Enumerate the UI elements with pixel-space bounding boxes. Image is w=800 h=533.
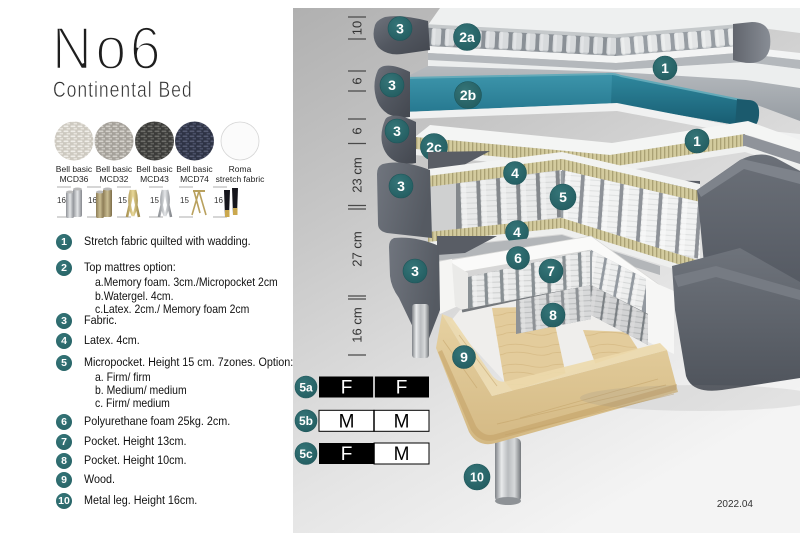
svg-text:16 cm: 16 cm <box>350 307 365 342</box>
svg-text:Bell basic: Bell basic <box>176 164 213 174</box>
svg-text:27 cm: 27 cm <box>350 231 365 266</box>
svg-text:4: 4 <box>513 224 521 240</box>
svg-text:9: 9 <box>460 349 468 365</box>
svg-text:10: 10 <box>350 21 365 35</box>
svg-text:3: 3 <box>397 178 405 194</box>
svg-text:MCD36: MCD36 <box>60 174 89 184</box>
svg-text:7: 7 <box>547 263 555 279</box>
svg-text:Roma: Roma <box>229 164 252 174</box>
svg-text:M: M <box>394 411 410 432</box>
svg-text:5c: 5c <box>299 447 313 461</box>
svg-text:F: F <box>341 378 353 399</box>
svg-text:6: 6 <box>350 127 365 134</box>
svg-text:F: F <box>341 444 353 465</box>
svg-text:5: 5 <box>559 189 567 205</box>
svg-text:1: 1 <box>693 133 701 149</box>
svg-text:8: 8 <box>549 307 557 323</box>
svg-text:3: 3 <box>388 77 396 93</box>
svg-text:10: 10 <box>470 471 484 485</box>
svg-text:6: 6 <box>350 77 365 84</box>
svg-text:2022.04: 2022.04 <box>717 499 754 510</box>
svg-text:4: 4 <box>511 165 519 181</box>
svg-text:MCD32: MCD32 <box>100 174 129 184</box>
svg-text:M: M <box>394 444 410 465</box>
svg-text:F: F <box>396 378 408 399</box>
svg-text:3: 3 <box>396 21 404 37</box>
svg-text:MCD74: MCD74 <box>180 174 209 184</box>
svg-text:16: 16 <box>57 196 66 205</box>
svg-text:5b: 5b <box>299 414 313 428</box>
svg-text:23 cm: 23 cm <box>350 157 365 192</box>
svg-text:6: 6 <box>514 250 522 266</box>
svg-text:15: 15 <box>118 196 127 205</box>
svg-text:M: M <box>339 411 355 432</box>
svg-text:stretch fabric: stretch fabric <box>216 174 265 184</box>
svg-text:15: 15 <box>150 196 159 205</box>
svg-text:3: 3 <box>411 263 419 279</box>
svg-text:MCD43: MCD43 <box>140 174 169 184</box>
svg-text:2b: 2b <box>460 87 476 103</box>
svg-text:5a: 5a <box>299 380 313 394</box>
svg-text:Bell basic: Bell basic <box>136 164 173 174</box>
svg-text:Bell basic: Bell basic <box>56 164 93 174</box>
svg-text:2a: 2a <box>459 29 475 45</box>
svg-text:Bell basic: Bell basic <box>96 164 133 174</box>
svg-text:16: 16 <box>214 196 223 205</box>
svg-text:1: 1 <box>661 60 669 76</box>
svg-text:15: 15 <box>180 196 189 205</box>
svg-text:3: 3 <box>393 123 401 139</box>
